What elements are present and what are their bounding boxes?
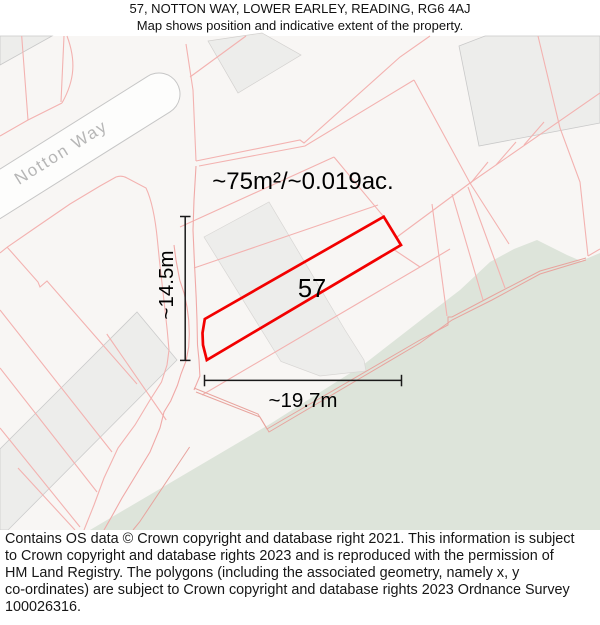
svg-text:~75m²/~0.019ac.: ~75m²/~0.019ac. (212, 168, 393, 195)
svg-text:~19.7m: ~19.7m (269, 389, 338, 412)
svg-text:57: 57 (298, 275, 326, 303)
svg-text:~14.5m: ~14.5m (155, 251, 178, 320)
